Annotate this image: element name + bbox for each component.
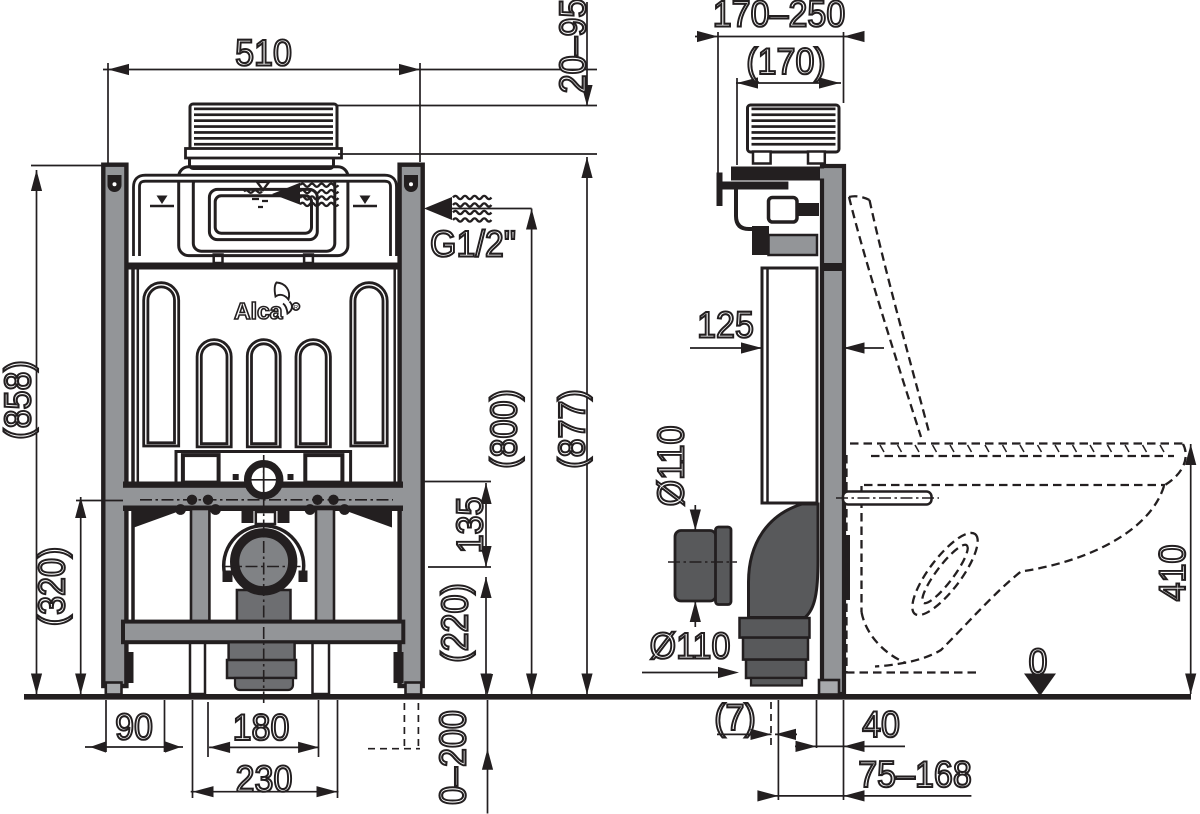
svg-text:Ø110: Ø110 bbox=[650, 426, 692, 507]
svg-text:R: R bbox=[294, 306, 299, 312]
svg-text:180: 180 bbox=[233, 707, 290, 749]
svg-text:Ø110: Ø110 bbox=[650, 625, 731, 667]
svg-text:(170): (170) bbox=[746, 41, 825, 83]
svg-text:0–200: 0–200 bbox=[432, 710, 474, 805]
svg-text:G1/2": G1/2" bbox=[430, 223, 516, 265]
svg-text:20–95: 20–95 bbox=[552, 0, 594, 93]
svg-text:410: 410 bbox=[1152, 545, 1194, 602]
svg-text:(220): (220) bbox=[434, 583, 476, 662]
svg-text:135: 135 bbox=[449, 497, 491, 554]
svg-text:(7): (7) bbox=[714, 697, 756, 739]
svg-text:(800): (800) bbox=[483, 389, 525, 468]
svg-text:125: 125 bbox=[697, 304, 754, 346]
svg-text:(877): (877) bbox=[551, 389, 593, 468]
svg-text:230: 230 bbox=[236, 758, 293, 800]
svg-text:(858): (858) bbox=[0, 360, 39, 439]
svg-text:40: 40 bbox=[862, 704, 900, 746]
svg-text:(320): (320) bbox=[31, 547, 73, 626]
svg-text:170–250: 170–250 bbox=[713, 0, 846, 35]
svg-text:90: 90 bbox=[115, 706, 153, 748]
svg-text:Alca: Alca bbox=[234, 298, 283, 324]
svg-text:75–168: 75–168 bbox=[858, 754, 972, 796]
svg-text:510: 510 bbox=[235, 32, 292, 74]
